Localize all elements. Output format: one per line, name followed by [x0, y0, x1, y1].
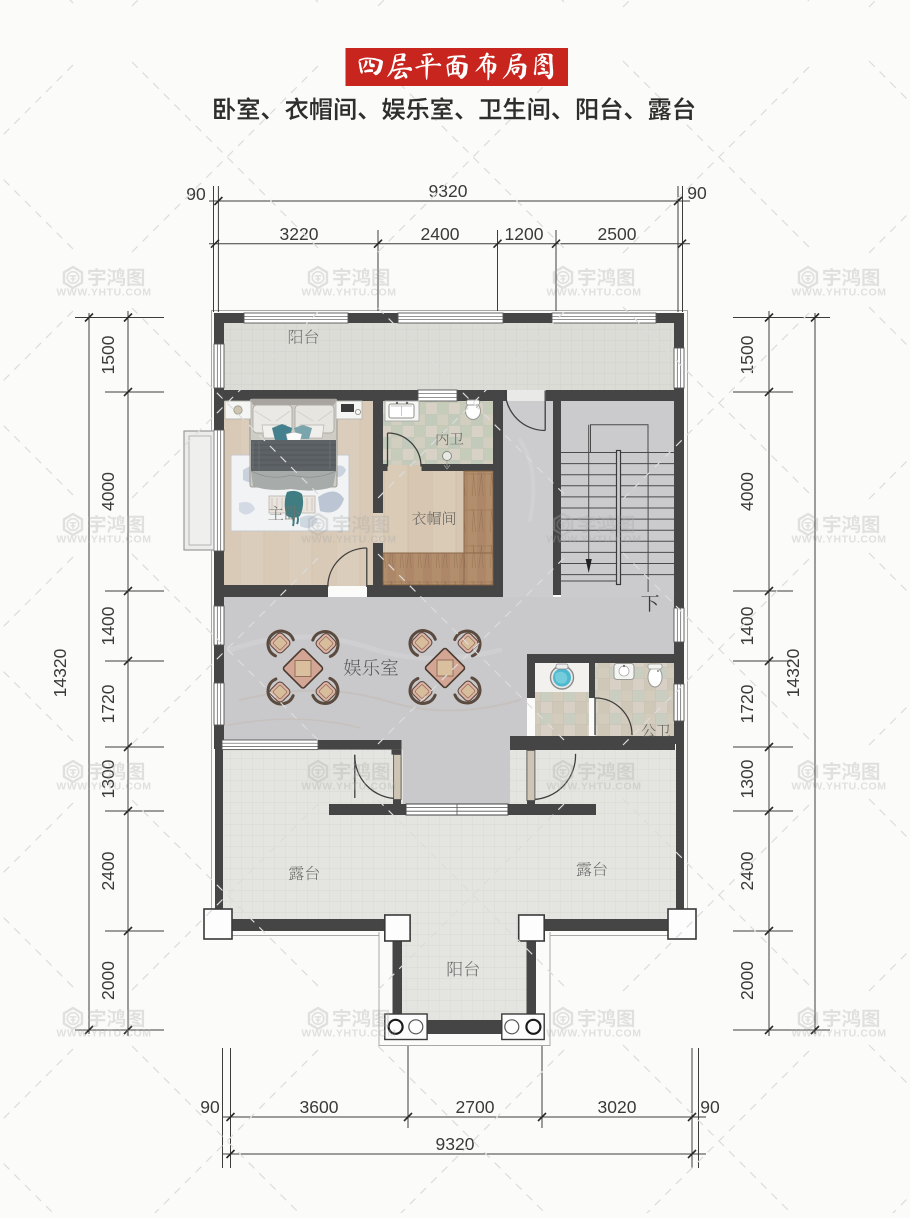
svg-text:90: 90 [700, 1097, 720, 1117]
svg-text:1720: 1720 [737, 684, 757, 723]
svg-text:2400: 2400 [737, 851, 757, 890]
svg-text:2400: 2400 [421, 224, 460, 244]
svg-text:4000: 4000 [737, 472, 757, 511]
svg-text:9320: 9320 [436, 1134, 475, 1154]
svg-text:1300: 1300 [737, 759, 757, 798]
svg-text:9320: 9320 [429, 181, 468, 201]
svg-text:14320: 14320 [783, 648, 803, 697]
svg-text:1720: 1720 [98, 684, 118, 723]
svg-text:14320: 14320 [50, 648, 70, 697]
svg-text:3020: 3020 [598, 1097, 637, 1117]
svg-text:1400: 1400 [737, 606, 757, 645]
svg-text:4000: 4000 [98, 472, 118, 511]
svg-text:2400: 2400 [98, 851, 118, 890]
svg-text:2700: 2700 [456, 1097, 495, 1117]
svg-text:3220: 3220 [280, 224, 319, 244]
svg-text:2000: 2000 [98, 961, 118, 1000]
svg-text:90: 90 [200, 1097, 220, 1117]
svg-text:1400: 1400 [98, 606, 118, 645]
svg-text:2500: 2500 [598, 224, 637, 244]
svg-text:3600: 3600 [300, 1097, 339, 1117]
svg-text:2000: 2000 [737, 961, 757, 1000]
svg-text:1500: 1500 [98, 335, 118, 374]
svg-text:1200: 1200 [505, 224, 544, 244]
